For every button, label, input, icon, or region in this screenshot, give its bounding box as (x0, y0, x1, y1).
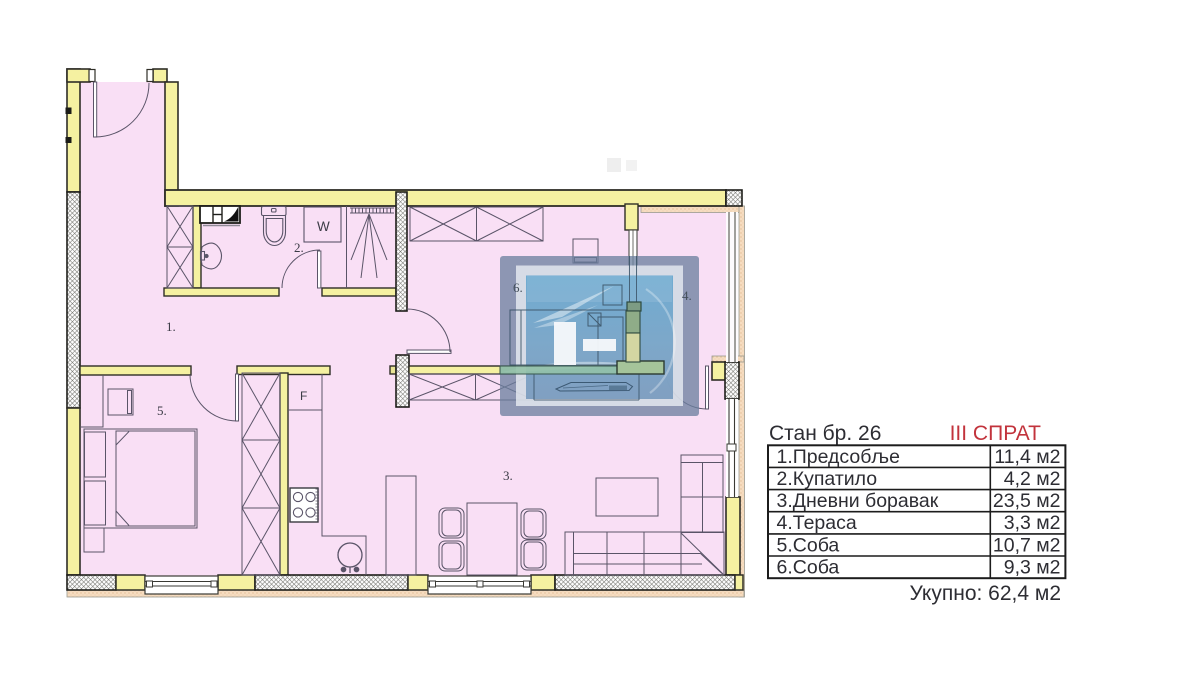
svg-text:9,3 м2: 9,3 м2 (1004, 557, 1061, 579)
svg-text:4,2 м2: 4,2 м2 (1004, 468, 1061, 490)
svg-text:11,4 м2: 11,4 м2 (994, 446, 1060, 468)
svg-text:4.: 4. (682, 288, 692, 303)
svg-text:5.Соба: 5.Соба (777, 534, 840, 556)
svg-text:F: F (300, 389, 307, 403)
svg-text:23,5 м2: 23,5 м2 (993, 490, 1061, 512)
svg-text:5.: 5. (157, 403, 167, 418)
svg-text:3,3 м2: 3,3 м2 (1004, 512, 1061, 534)
svg-text:3.Дневни боравак: 3.Дневни боравак (777, 490, 939, 512)
svg-text:3.: 3. (503, 468, 513, 483)
svg-text:4.Тераса: 4.Тераса (777, 512, 857, 534)
svg-text:Укупно: 62,4 м2: Укупно: 62,4 м2 (910, 582, 1061, 605)
svg-text:W: W (317, 219, 330, 234)
svg-text:1.Предсобље: 1.Предсобље (777, 446, 900, 468)
svg-text:1.: 1. (166, 319, 176, 334)
svg-text:6.Соба: 6.Соба (777, 557, 840, 579)
svg-text:2.Купатило: 2.Купатило (777, 468, 878, 490)
svg-text:2.: 2. (294, 240, 304, 255)
svg-text:Стан бр. 26: Стан бр. 26 (769, 422, 881, 445)
svg-text:6.: 6. (513, 280, 523, 295)
svg-text:III СПРАТ: III СПРАТ (950, 422, 1042, 445)
svg-text:10,7 м2: 10,7 м2 (993, 534, 1061, 556)
